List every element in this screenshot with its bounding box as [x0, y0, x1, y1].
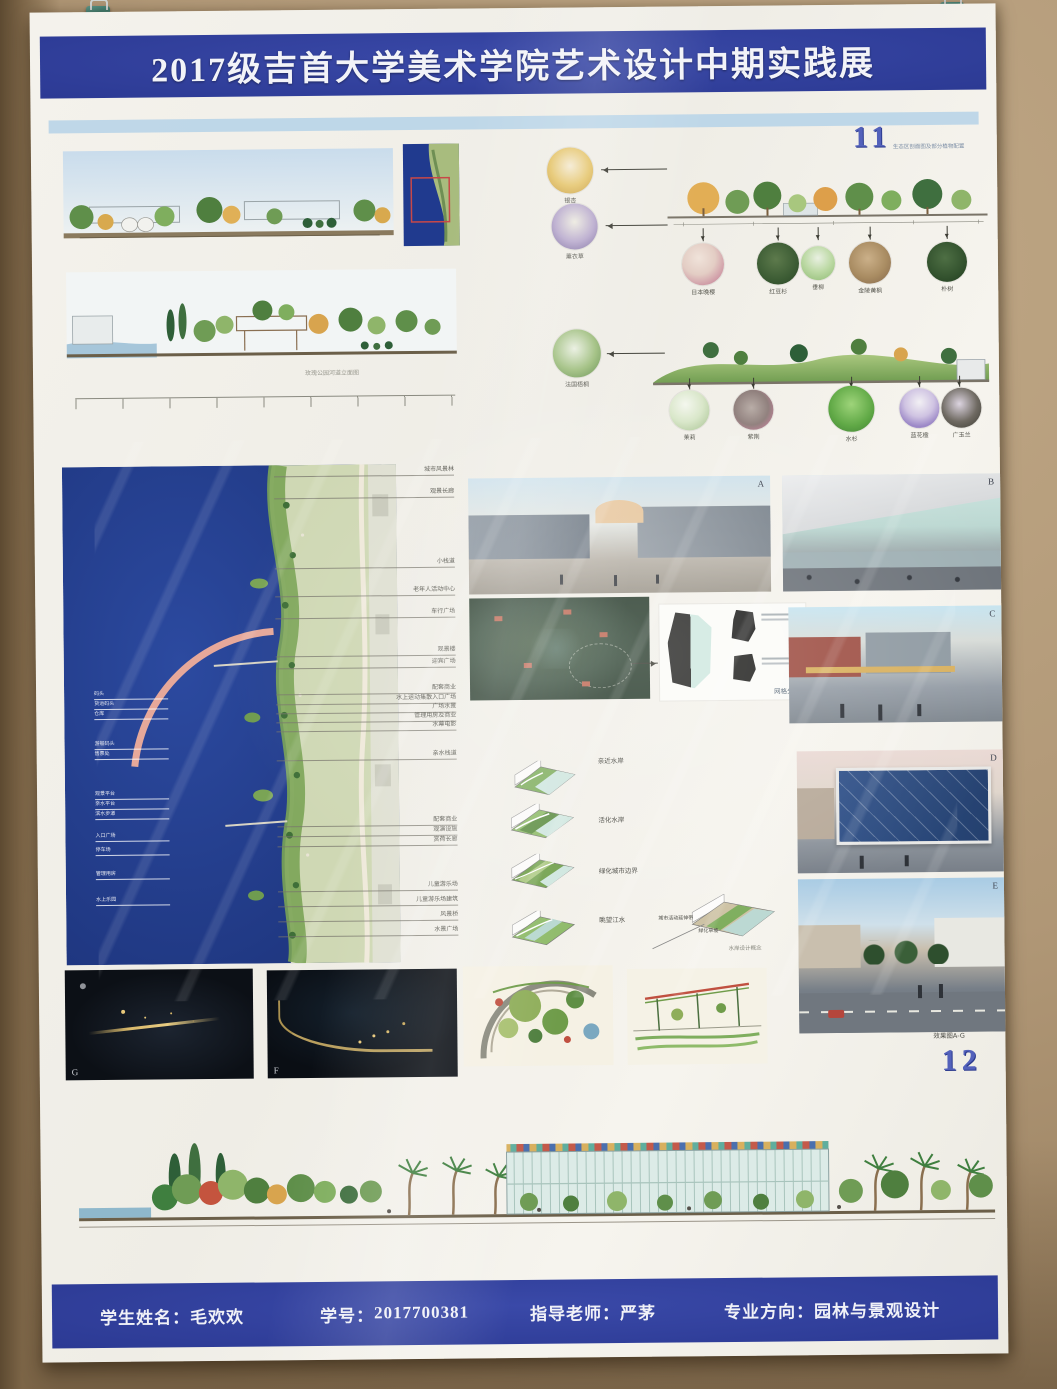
satellite-map	[469, 597, 650, 701]
figure	[905, 855, 909, 866]
plant-photo-willow: 垂柳	[801, 246, 835, 280]
axon-diagram-3	[502, 853, 578, 894]
river-elevation-caption: 玫瑰公园河道立面图	[305, 368, 359, 378]
rendering-c: C	[788, 605, 1002, 723]
plant-photo-yew: 红豆杉	[757, 242, 799, 284]
dimension-scale-bar	[75, 395, 455, 410]
content-top-strip	[49, 112, 979, 134]
crowd-strip	[783, 566, 1001, 591]
figure	[879, 704, 883, 720]
lights	[372, 1034, 375, 1037]
figure	[656, 574, 659, 583]
concept-label-1: 城市活动延伸带	[658, 914, 693, 921]
plant-photo-maple: 金陵黄枫	[849, 241, 891, 283]
plan-label: 观景长廊	[274, 489, 454, 499]
plan-label: 配套商业	[277, 817, 457, 827]
leader-line	[818, 227, 819, 240]
planting-section-2	[648, 301, 993, 396]
student-name-field: 学生姓名：毛欢欢	[100, 1283, 245, 1348]
plant-photo-plane-tree: 法国梧桐	[553, 329, 601, 377]
map-tag	[563, 610, 571, 615]
map-tag	[524, 663, 532, 668]
plant-label: 法国梧桐	[565, 379, 589, 388]
figure	[840, 704, 844, 718]
grid-analysis-panel: 网格分析	[659, 603, 806, 700]
plant-photo-metasequoia: 水杉	[828, 386, 874, 432]
leader-arrow-icon	[601, 169, 667, 171]
leader-line	[947, 226, 948, 239]
river-elevation-drawing	[64, 261, 461, 383]
map-tag	[495, 617, 503, 622]
diagram-label-top: 亲近水岸	[598, 755, 624, 765]
render-letter-g: G	[72, 1067, 79, 1077]
plant-label: 朴树	[941, 284, 953, 293]
planting-section-drawing-2	[648, 301, 993, 396]
render-letter-d: D	[990, 752, 997, 762]
map-tag	[599, 632, 607, 637]
bridge-deck	[782, 473, 1001, 536]
plant-photo-jacaranda: 蓝花楹	[899, 388, 939, 428]
advisor-label: 指导老师：	[530, 1299, 620, 1325]
plant-photo-cherry: 日本晚樱	[682, 243, 724, 285]
plan-label: 儿童游乐场建筑	[278, 897, 458, 907]
planting-section-1	[663, 143, 992, 234]
poster-header-banner: 2017级吉首大学美术学院艺术设计中期实践展	[40, 27, 987, 98]
concept-label-2: 绿化草坡	[698, 927, 718, 934]
diagram-label-1: 活化水岸	[598, 814, 624, 824]
plan-label: 码头	[94, 691, 168, 699]
render-letter-f: F	[274, 1065, 279, 1075]
moon	[80, 983, 86, 989]
glass-grid	[839, 770, 988, 842]
plan-label: 儿童游乐场	[278, 882, 458, 892]
analysis-chip	[732, 654, 756, 682]
axon-diagram-4	[502, 910, 578, 951]
figure	[560, 574, 563, 584]
render-letter-a: A	[758, 479, 765, 489]
light-streak	[88, 1017, 219, 1035]
street-trees	[852, 939, 959, 965]
renders-caption: 效果图A-G	[933, 1030, 965, 1040]
advisor-field: 指导老师：严茅	[530, 1279, 657, 1344]
axon-diagram-1	[505, 760, 579, 799]
wall-photo: 2017级吉首大学美术学院艺术设计中期实践展 11 生态区剖面图及部分植物配置	[0, 0, 1057, 1389]
analysis-chip	[731, 610, 755, 642]
leader-arrow-icon	[632, 663, 658, 664]
plan-label: 风景桥	[278, 912, 458, 922]
plan-label: 观演设施	[277, 827, 457, 837]
plan-label: 亲水栈道	[277, 751, 457, 761]
plan-label: 停车场	[96, 847, 170, 855]
plant-label: 紫荆	[748, 432, 760, 441]
render-letter-e: E	[992, 880, 998, 890]
location-inset-map	[403, 144, 460, 247]
plan-label: 观景平台	[95, 791, 169, 799]
plant-photo-lavender: 薰衣草	[551, 203, 597, 249]
poster-sheet: 2017级吉首大学美术学院艺术设计中期实践展 11 生态区剖面图及部分植物配置	[30, 3, 1009, 1362]
plant-label: 水杉	[846, 434, 858, 443]
poster-title: 2017级吉首大学美术学院艺术设计中期实践展	[40, 27, 987, 98]
building-block	[637, 506, 770, 558]
concept-caption: 水岸设计概念	[729, 944, 762, 952]
plan-label: 小栈道	[275, 559, 455, 569]
poster-footer-banner: 学生姓名：毛欢欢 学号：2017700381 指导老师：严茅 专业方向：园林与景…	[52, 1275, 999, 1348]
plan-label: 仓库	[94, 711, 168, 719]
bottom-long-section	[68, 1091, 1005, 1248]
building-block	[468, 514, 589, 559]
plan-label: 货运码头	[94, 701, 168, 709]
plan-label: 观景楼	[276, 647, 456, 657]
rendering-d: D	[797, 749, 1004, 873]
major-field: 专业方向：园林与景观设计	[724, 1276, 941, 1342]
plant-photo-jasmine: 茉莉	[669, 390, 709, 430]
render-letter-c: C	[989, 608, 995, 618]
leader-line	[778, 227, 779, 240]
major-label: 专业方向：	[724, 1297, 814, 1323]
plant-label: 垂柳	[812, 282, 824, 291]
rendering-e: E	[798, 877, 1005, 1033]
plan-label: 车行广场	[275, 609, 455, 619]
plant-label: 日本晚樱	[691, 287, 715, 296]
plan-label: 水幕电影	[276, 722, 456, 732]
leader-line	[703, 228, 704, 241]
bottom-section-drawing	[68, 1091, 1005, 1248]
section-elevation-panel-1	[59, 142, 462, 262]
figure-ground-map	[667, 612, 712, 688]
map-tag	[582, 681, 590, 686]
plan-label: 入口广场	[95, 833, 169, 841]
student-name-label: 学生姓名：	[100, 1303, 190, 1329]
figure	[917, 704, 921, 716]
section-elevation-panel-2	[64, 261, 461, 383]
plant-label: 蓝花楹	[911, 430, 929, 439]
section-elevation-drawing-1	[59, 142, 462, 262]
rendering-a: A	[468, 476, 771, 595]
student-id-value: 2017700381	[374, 1303, 469, 1324]
car	[828, 1010, 844, 1018]
leader-line	[753, 378, 754, 389]
rendering-b: B	[782, 473, 1001, 591]
figure	[859, 856, 863, 869]
building-block	[797, 788, 835, 840]
note-line	[761, 618, 791, 620]
leader-line	[689, 378, 690, 389]
plant-label: 红豆杉	[769, 286, 787, 295]
major-value: 园林与景观设计	[814, 1295, 940, 1321]
coastline-lights	[278, 999, 432, 1053]
student-name-value: 毛欢欢	[190, 1302, 244, 1328]
leader-line	[919, 376, 920, 387]
figure	[614, 575, 617, 586]
plan-label: 水景广场	[278, 927, 458, 937]
note-line	[762, 662, 790, 664]
axon-diagram-2	[501, 803, 577, 844]
plan-label: 滨水步道	[95, 811, 169, 819]
diagram-label-2: 绿化城市边界	[599, 865, 638, 875]
figure	[918, 985, 922, 998]
night-photo-g: G	[65, 969, 254, 1081]
concept-axon-diagram	[648, 893, 783, 952]
plant-label: 茉莉	[684, 432, 696, 441]
plan-label: 赏荷长廊	[277, 837, 457, 847]
plan-label: 水上乐园	[96, 897, 170, 905]
leader-arrow-icon	[606, 225, 668, 227]
plant-label: 金陵黄枫	[858, 285, 882, 294]
plant-photo-hackberry: 朴树	[927, 242, 967, 282]
leader-line	[959, 376, 960, 387]
plant-photo-ginkgo: 银杏	[547, 147, 593, 193]
plant-label: 薰衣草	[566, 251, 584, 260]
plan-label: 亲水平台	[95, 801, 169, 809]
plant-photo-redbud: 紫荆	[733, 390, 773, 430]
plan-label: 城市风景林	[274, 467, 454, 477]
lights	[122, 1009, 126, 1013]
student-id-label: 学号：	[320, 1301, 374, 1327]
leader-line	[870, 227, 871, 240]
plan-label: 售票处	[95, 751, 169, 759]
plant-photo-magnolia: 广玉兰	[941, 388, 981, 428]
advisor-value: 严茅	[620, 1298, 656, 1323]
hand-drawn-plan-sketch	[463, 965, 614, 1066]
planting-section-drawing-1	[663, 143, 992, 234]
student-id-field: 学号：2017700381	[320, 1281, 470, 1346]
figure	[939, 984, 943, 998]
plan-label: 老年人活动中心	[275, 587, 455, 597]
diagram-label-3: 眺望江水	[599, 914, 625, 924]
hand-drawn-perspective-sketch	[627, 968, 768, 1065]
canopy	[595, 500, 644, 524]
plan-label: 迎宾广场	[276, 659, 456, 669]
render-letter-b: B	[988, 476, 994, 486]
plan-label: 管理用房	[96, 871, 170, 879]
plant-label: 广玉兰	[953, 430, 971, 439]
page-number-12: 12	[941, 1044, 981, 1078]
plan-label: 游船码头	[95, 741, 169, 749]
site-boundary-circle	[569, 643, 633, 688]
night-photo-f: F	[267, 969, 458, 1079]
glass-facade	[836, 767, 991, 845]
